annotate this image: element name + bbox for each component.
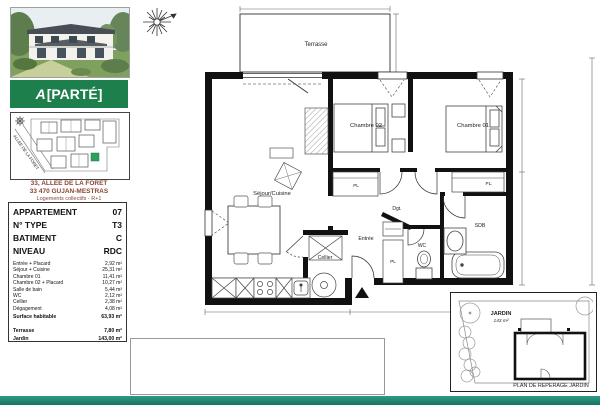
entree-label: Entrée	[358, 236, 373, 242]
entrance-arrow-icon	[355, 287, 369, 298]
chambre02-label: Chambre 02	[350, 123, 382, 129]
terrasse-area: Terrasse	[240, 6, 399, 72]
terrasse-label: Terrasse	[304, 42, 328, 48]
jardin-locator-box: JARDIN 143 m² PLAN DE REPERAGE JARDIN	[450, 292, 597, 392]
project-address: 33, ALLEE DE LA FORET 33 470 GUJAN-MESTR…	[4, 180, 134, 203]
wc-fixtures	[416, 251, 432, 279]
building-photo	[10, 7, 130, 78]
pl-entree-label: PL	[390, 259, 396, 264]
north-compass-icon	[143, 8, 176, 36]
terrasse-row: Terrasse7,80 m²	[13, 327, 122, 335]
sdb-label: SDB	[475, 223, 486, 229]
wc-label: WC	[418, 243, 427, 249]
pl-chambre02-label: PL	[353, 183, 359, 188]
site-plan: ALLEE DE LA FORET	[10, 112, 130, 180]
address-line2: 33 470 GUJAN-MESTRAS	[4, 188, 134, 196]
sdb-fixtures	[444, 228, 504, 278]
info-row-type: N° TYPE T3	[13, 219, 122, 232]
site-street-label: ALLEE DE LA FORET	[12, 134, 40, 171]
info-row-niveau: NIVEAU RDC	[13, 245, 122, 258]
address-line1: 33, ALLEE DE LA FORET	[4, 180, 134, 188]
jardin-title: JARDIN	[491, 311, 512, 317]
chambre01-label: Chambre 01	[457, 123, 489, 129]
apartment-info-table: APPARTEMENT 07 N° TYPE T3 BATIMENT C NIV…	[8, 202, 127, 342]
notes-box	[130, 338, 385, 395]
jardin-caption: PLAN DE REPERAGE JARDIN	[513, 383, 589, 388]
chambre01-furniture	[446, 106, 502, 152]
area-row: Dégagement4,08 m²	[13, 306, 122, 312]
jardin-area: 143 m²	[494, 318, 509, 324]
info-row-appartement: APPARTEMENT 07	[13, 206, 122, 219]
building-photo-art	[11, 8, 129, 77]
site-buildings	[37, 120, 116, 168]
brochure-page: A[PARTÉ] ALLEE DE LA FORET	[0, 0, 600, 405]
cellier-label: Cellier	[318, 255, 333, 261]
info-row-batiment: BATIMENT C	[13, 232, 122, 245]
dgt-label: Dgt.	[392, 206, 401, 212]
total-surface-row: Surface habitable63,93 m²	[13, 313, 122, 321]
jardin-row: Jardin143,00 m²	[13, 335, 122, 343]
site-plan-art: ALLEE DE LA FORET	[11, 113, 127, 177]
jardin-plan-art: JARDIN 143 m² PLAN DE REPERAGE JARDIN	[451, 293, 593, 388]
brand-logo-rest: [PARTÉ]	[47, 86, 103, 102]
pl-chambre01-label: PL.	[486, 181, 493, 186]
brand-banner: A[PARTÉ]	[10, 80, 128, 108]
sejour-label: Séjour/Cuisine	[253, 191, 291, 197]
site-compass-icon	[15, 116, 25, 126]
site-highlighted-unit	[91, 153, 99, 161]
brand-logo-prefix: A	[36, 86, 46, 102]
cellier-fixtures	[309, 236, 342, 297]
floor-plan: Terrasse	[128, 0, 600, 318]
kitchen-counter	[212, 278, 310, 298]
footer-band	[0, 396, 600, 405]
